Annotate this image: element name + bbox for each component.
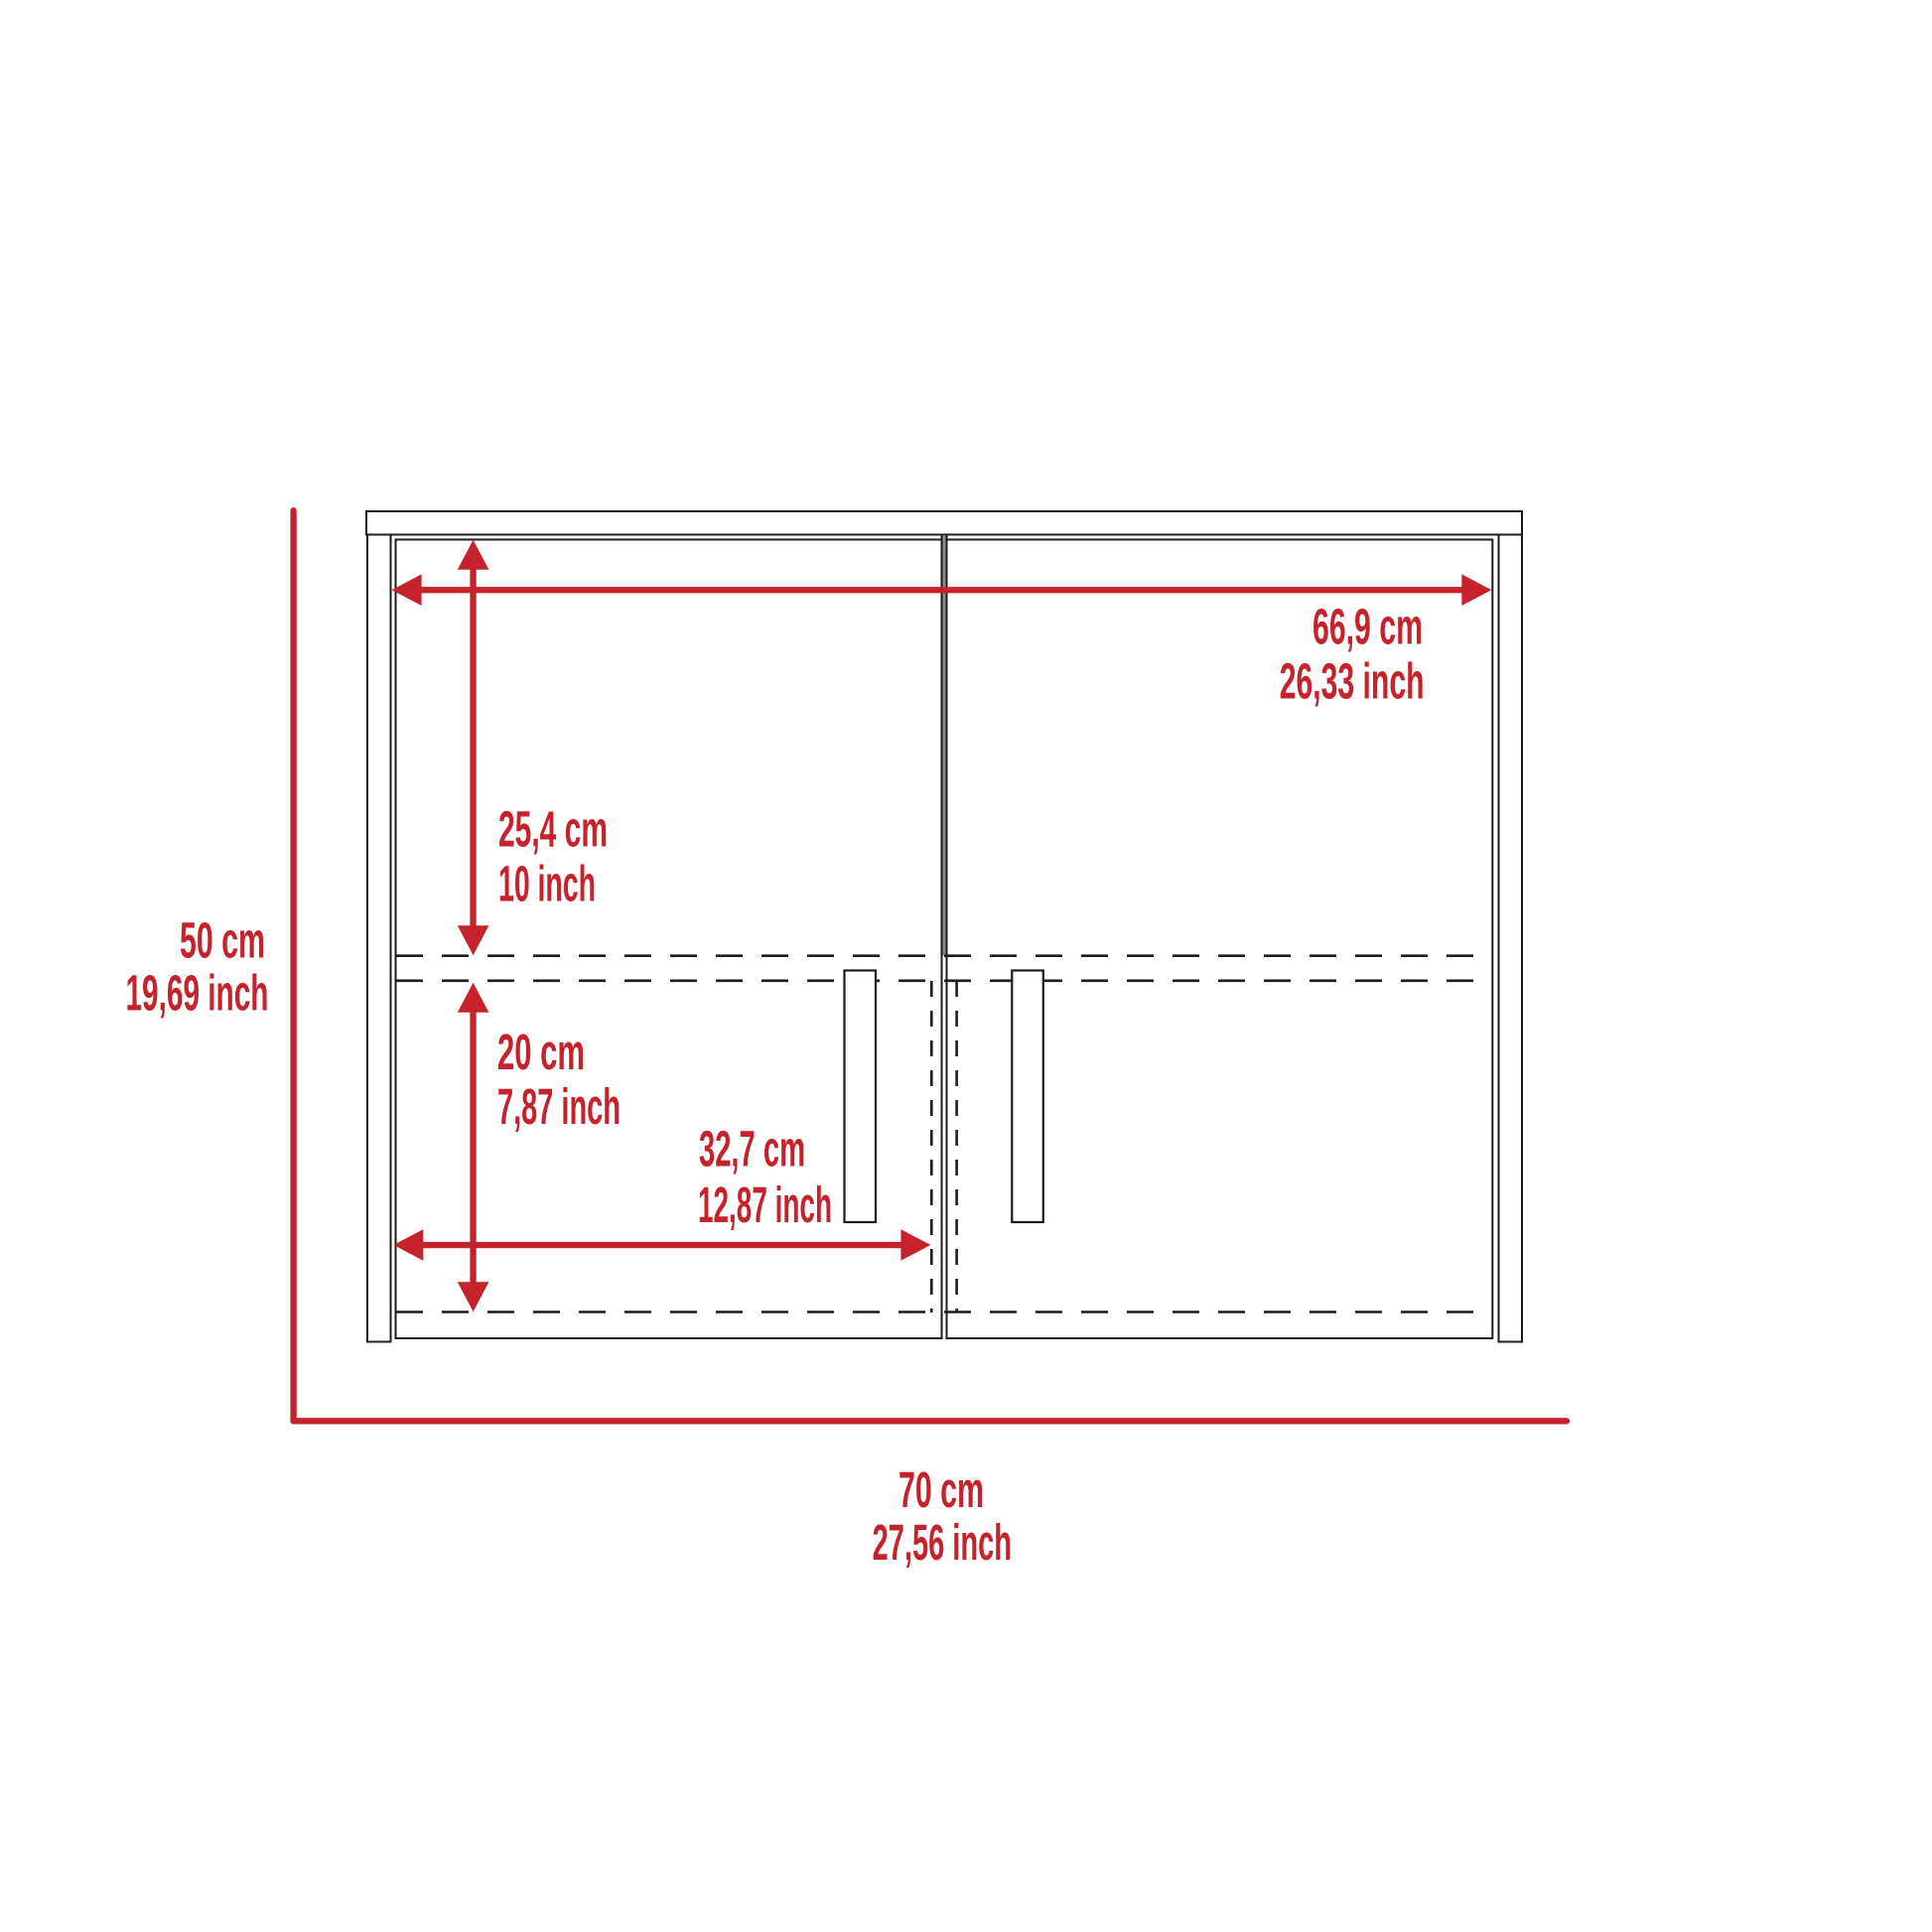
svg-text:7,87 inch: 7,87 inch xyxy=(497,1078,621,1135)
svg-text:66,9 cm: 66,9 cm xyxy=(1312,598,1423,654)
svg-text:12,87 inch: 12,87 inch xyxy=(698,1176,832,1233)
svg-text:25,4 cm: 25,4 cm xyxy=(498,800,608,857)
svg-text:27,56 inch: 27,56 inch xyxy=(873,1514,1012,1571)
svg-text:70 cm: 70 cm xyxy=(898,1461,984,1518)
svg-text:20 cm: 20 cm xyxy=(497,1024,585,1080)
svg-text:26,33 inch: 26,33 inch xyxy=(1280,653,1425,710)
svg-text:10 inch: 10 inch xyxy=(498,856,596,912)
svg-text:19,69 inch: 19,69 inch xyxy=(126,965,269,1022)
svg-text:32,7 cm: 32,7 cm xyxy=(699,1121,805,1177)
svg-text:50 cm: 50 cm xyxy=(180,912,265,969)
